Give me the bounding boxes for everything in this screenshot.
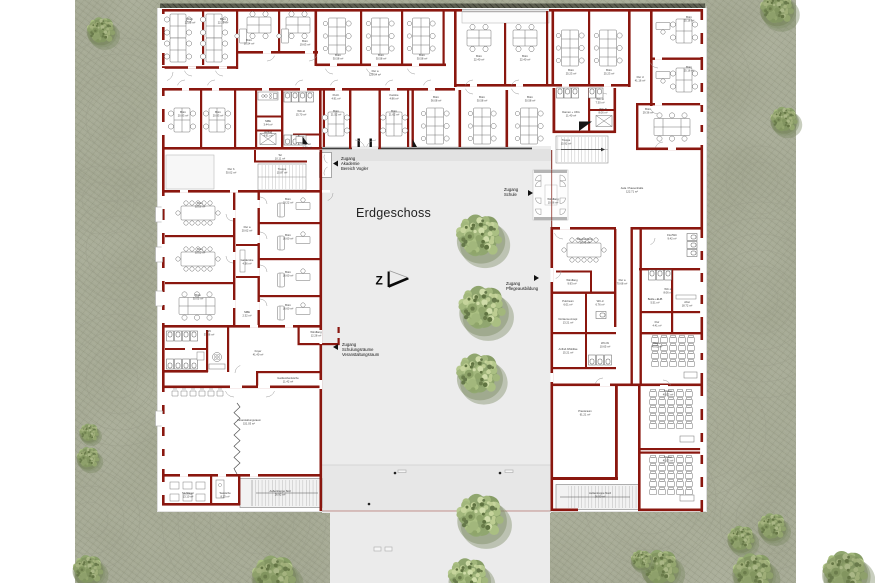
svg-text:Stuhllager13.10 m²: Stuhllager13.10 m² [182, 491, 194, 498]
svg-text:Windfang10.06 m²: Windfang10.06 m² [547, 197, 559, 204]
svg-text:Klasse41.03 m²: Klasse41.03 m² [663, 455, 674, 462]
svg-text:Treppe15.87 m²: Treppe15.87 m² [277, 167, 288, 174]
svg-text:Windfang12.28 m²: Windfang12.28 m² [310, 330, 322, 337]
svg-text:WC-D8.06 m²: WC-D8.06 m² [598, 107, 607, 114]
svg-text:Putzr.4.91 m²: Putzr.4.91 m² [331, 93, 340, 100]
svg-text:WC-H7.30 m²: WC-H7.30 m² [595, 97, 604, 104]
svg-text:Teeküche8.23 m²: Teeküche8.23 m² [219, 491, 231, 498]
svg-text:Treppe15.92 m²: Treppe15.92 m² [561, 138, 572, 145]
svg-text:Server2.86 m²: Server2.86 m² [302, 142, 311, 149]
svg-text:WC-H8.06 m²: WC-H8.06 m² [663, 287, 672, 294]
svg-text:Flur/WC9.42 m²: Flur/WC9.42 m² [667, 233, 677, 240]
svg-text:Z: Z [376, 274, 383, 288]
svg-text:Klasse40.02 m²: Klasse40.02 m² [652, 341, 663, 348]
svg-text:Kantine4.86 m²: Kantine4.86 m² [389, 93, 399, 100]
svg-text:WC-W10.65 m²: WC-W10.65 m² [600, 341, 611, 348]
svg-text:WC-d6.76 m²: WC-d6.76 m² [595, 299, 604, 306]
svg-text:Windfang9.93 m²: Windfang9.93 m² [566, 278, 578, 285]
svg-text:Erdgeschoss: Erdgeschoss [356, 206, 431, 220]
svg-text:Klasse40.02 m²: Klasse40.02 m² [663, 389, 674, 396]
svg-text:Aufzug4.91 m²: Aufzug4.91 m² [263, 130, 272, 137]
svg-text:ZugangSchule: ZugangSchule [504, 187, 519, 197]
